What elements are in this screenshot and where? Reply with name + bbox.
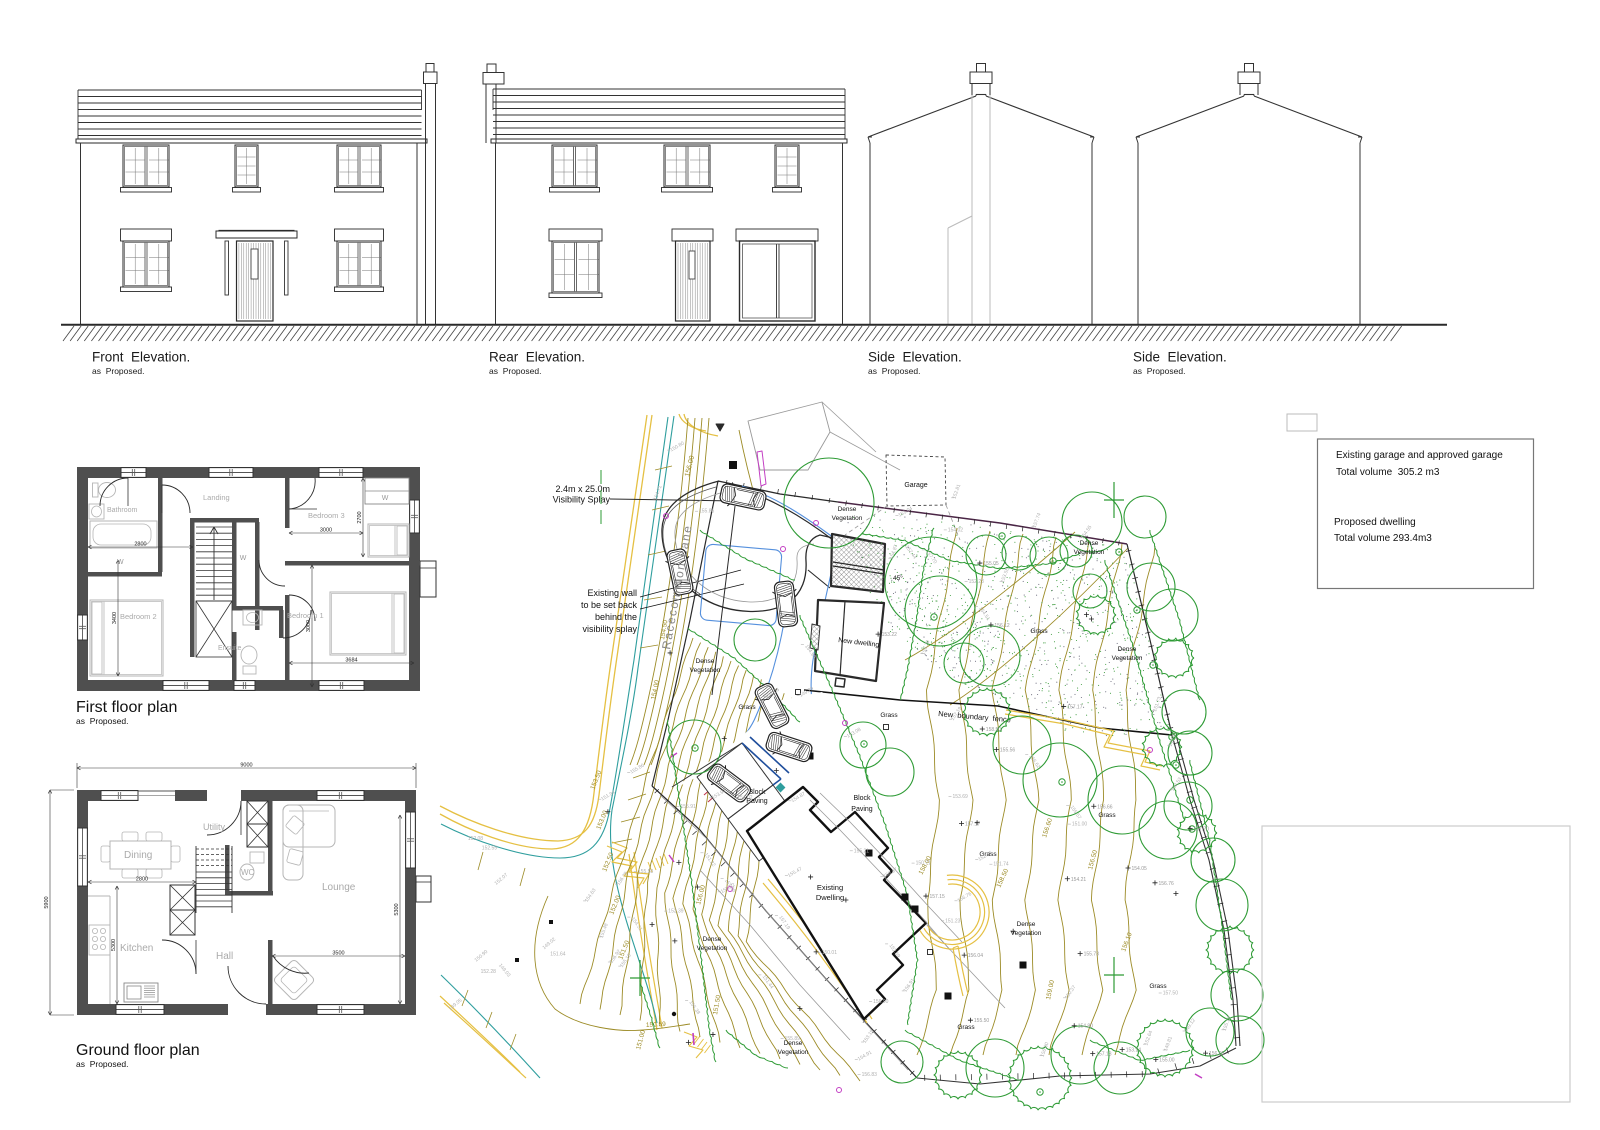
svg-text:as Proposed.: as Proposed. [92, 366, 144, 376]
svg-text:Vegetation: Vegetation [1074, 549, 1105, 556]
svg-text:Bedroom 2: Bedroom 2 [120, 612, 157, 621]
svg-text:Dense: Dense [1118, 646, 1137, 653]
svg-text:153.14: 153.14 [1126, 1048, 1142, 1054]
svg-text:5900: 5900 [44, 896, 50, 908]
svg-text:Side Elevation.: Side Elevation. [1133, 350, 1227, 365]
svg-text:154.02: 154.02 [737, 795, 753, 801]
svg-text:Dense: Dense [1080, 540, 1099, 547]
svg-text:3000: 3000 [320, 528, 332, 534]
svg-text:155.21: 155.21 [854, 848, 870, 854]
svg-text:Landing: Landing [203, 493, 230, 502]
svg-text:157.44: 157.44 [904, 544, 918, 560]
svg-text:155.56: 155.56 [1000, 748, 1016, 754]
svg-text:155.86: 155.86 [629, 763, 645, 776]
svg-text:Existing wall: Existing wall [587, 588, 637, 598]
svg-text:Kitchen: Kitchen [120, 943, 153, 954]
svg-text:Dwelling: Dwelling [816, 893, 844, 902]
svg-text:Total volume 305.2 m3: Total volume 305.2 m3 [1336, 467, 1440, 478]
svg-text:W: W [382, 495, 389, 502]
svg-text:156.76: 156.76 [1159, 881, 1175, 887]
svg-text:New boundary fence: New boundary fence [938, 709, 1011, 724]
svg-text:Grass: Grass [738, 704, 756, 711]
svg-text:152.08: 152.08 [468, 836, 484, 842]
svg-text:155.89: 155.89 [785, 1036, 801, 1042]
svg-text:Vegetation: Vegetation [1112, 655, 1143, 662]
svg-text:154.80: 154.80 [1078, 1024, 1094, 1030]
svg-text:151.50: 151.50 [712, 994, 722, 1015]
svg-text:158.50: 158.50 [986, 727, 1002, 733]
svg-text:3500: 3500 [332, 951, 344, 957]
svg-text:Existing: Existing [817, 883, 843, 892]
svg-text:5300: 5300 [394, 903, 400, 915]
svg-text:Front Elevation.: Front Elevation. [92, 350, 190, 365]
svg-text:151.23: 151.23 [945, 918, 961, 924]
svg-text:2800: 2800 [134, 542, 146, 548]
svg-text:156.90: 156.90 [873, 999, 889, 1005]
svg-text:3684: 3684 [345, 658, 357, 664]
svg-text:156.10: 156.10 [1120, 931, 1134, 952]
svg-text:Dense: Dense [696, 658, 715, 665]
svg-text:Vegetation: Vegetation [832, 515, 863, 522]
svg-text:156.66: 156.66 [1097, 804, 1113, 810]
svg-text:154.05: 154.05 [1132, 866, 1148, 872]
svg-text:156.04: 156.04 [968, 953, 984, 959]
svg-text:154.02: 154.02 [948, 527, 964, 533]
svg-text:157.50: 157.50 [1163, 991, 1179, 997]
svg-text:as Proposed.: as Proposed. [76, 716, 128, 726]
svg-text:155.73: 155.73 [1084, 952, 1100, 958]
svg-text:as Proposed.: as Proposed. [489, 366, 541, 376]
svg-text:157.70: 157.70 [1194, 827, 1210, 833]
svg-text:151.74: 151.74 [993, 862, 1009, 868]
svg-text:152.39: 152.39 [668, 909, 684, 915]
svg-text:157.74: 157.74 [1032, 512, 1043, 529]
svg-text:Lounge: Lounge [322, 882, 356, 893]
svg-text:as Proposed.: as Proposed. [868, 366, 920, 376]
svg-text:154.51: 154.51 [977, 606, 991, 622]
svg-text:Rear Elevation.: Rear Elevation. [489, 350, 585, 365]
svg-text:Dense: Dense [838, 506, 857, 513]
svg-text:156.62: 156.62 [1028, 754, 1042, 770]
svg-text:155.57: 155.57 [1069, 805, 1083, 821]
svg-text:Vegetation: Vegetation [690, 667, 721, 674]
svg-text:159.00: 159.00 [1045, 979, 1056, 1000]
svg-text:152.59: 152.59 [482, 846, 498, 852]
svg-text:149.02: 149.02 [542, 936, 558, 951]
svg-text:153.58: 153.58 [1000, 567, 1011, 584]
svg-text:Vegetation: Vegetation [778, 1049, 809, 1056]
svg-text:151.73: 151.73 [1152, 696, 1163, 713]
svg-text:155.82: 155.82 [720, 882, 736, 895]
svg-text:155.50: 155.50 [974, 1018, 990, 1024]
svg-text:Ensuite: Ensuite [218, 645, 241, 652]
svg-text:155.86: 155.86 [699, 509, 715, 515]
svg-text:152.64: 152.64 [1143, 1030, 1154, 1047]
svg-text:157.13: 157.13 [1096, 1052, 1112, 1058]
svg-text:Ground floor plan: Ground floor plan [76, 1042, 200, 1059]
svg-text:150.80: 150.80 [669, 440, 685, 453]
svg-text:150.90: 150.90 [474, 949, 490, 964]
svg-text:3000: 3000 [306, 620, 312, 632]
svg-text:151.64: 151.64 [550, 952, 566, 958]
svg-text:9000: 9000 [240, 763, 252, 769]
svg-text:W: W [117, 559, 124, 566]
svg-text:Dense: Dense [1017, 921, 1036, 928]
svg-text:152.00: 152.00 [608, 894, 622, 915]
svg-text:156.76: 156.76 [957, 891, 973, 904]
svg-text:154.51: 154.51 [630, 916, 644, 932]
svg-text:Grass: Grass [1098, 812, 1116, 819]
svg-text:Vegetation: Vegetation [697, 945, 728, 952]
svg-text:Grass: Grass [957, 1024, 975, 1031]
svg-text:Utility: Utility [203, 822, 225, 832]
svg-text:150.59: 150.59 [646, 1021, 667, 1029]
svg-text:157.15: 157.15 [930, 894, 946, 900]
svg-text:154.21: 154.21 [1071, 877, 1087, 883]
svg-text:First floor plan: First floor plan [76, 699, 177, 716]
svg-text:2.4m x 25.0m: 2.4m x 25.0m [555, 484, 610, 494]
svg-text:Total volume 293.4m3: Total volume 293.4m3 [1334, 533, 1432, 544]
svg-text:Dense: Dense [703, 936, 722, 943]
svg-text:Grass: Grass [1149, 983, 1167, 990]
svg-text:2800: 2800 [136, 877, 148, 883]
svg-text:Bedroom 1: Bedroom 1 [287, 611, 324, 620]
svg-text:W: W [240, 555, 247, 562]
svg-text:5300: 5300 [111, 939, 117, 951]
svg-text:157.17: 157.17 [1067, 704, 1083, 710]
svg-text:157.19: 157.19 [777, 915, 791, 931]
svg-text:to be set back: to be set back [581, 600, 638, 610]
svg-text:152.28: 152.28 [481, 969, 497, 975]
svg-text:visibility splay: visibility splay [582, 624, 637, 634]
svg-text:as Proposed.: as Proposed. [1133, 366, 1185, 376]
svg-text:150.01: 150.01 [822, 950, 838, 956]
svg-text:156.12: 156.12 [994, 623, 1010, 629]
svg-text:156.65: 156.65 [1209, 1051, 1225, 1057]
svg-text:Block: Block [853, 795, 871, 802]
svg-text:152.07: 152.07 [494, 872, 510, 887]
svg-text:2700: 2700 [357, 511, 363, 523]
svg-text:Grass: Grass [1030, 628, 1048, 635]
svg-text:Grass: Grass [880, 712, 898, 719]
svg-text:150.71: 150.71 [916, 861, 932, 867]
svg-text:as Proposed.: as Proposed. [76, 1059, 128, 1069]
svg-text:Hall: Hall [216, 951, 233, 962]
svg-text:Side Elevation.: Side Elevation. [868, 350, 962, 365]
svg-text:154.87: 154.87 [889, 544, 900, 561]
svg-text:153.69: 153.69 [953, 794, 969, 800]
svg-text:156.00: 156.00 [684, 455, 696, 478]
svg-text:149.03: 149.03 [497, 963, 512, 979]
svg-text:152.23: 152.23 [969, 579, 985, 585]
svg-text:152.81: 152.81 [951, 483, 962, 500]
svg-text:3400: 3400 [112, 612, 118, 624]
svg-text:Proposed dwelling: Proposed dwelling [1334, 517, 1416, 528]
svg-text:Bathroom: Bathroom [107, 507, 138, 514]
svg-text:Bedroom 3: Bedroom 3 [308, 511, 345, 520]
svg-text:149.81: 149.81 [1163, 1036, 1174, 1053]
svg-text:behind the: behind the [595, 612, 637, 622]
svg-text:155.58: 155.58 [638, 869, 654, 875]
svg-text:151.04: 151.04 [897, 506, 913, 519]
svg-text:Garage: Garage [904, 482, 927, 489]
svg-text:153.22: 153.22 [882, 632, 898, 638]
svg-text:155.00: 155.00 [1159, 1058, 1175, 1064]
svg-text:155.19: 155.19 [1222, 1015, 1233, 1032]
svg-text:WC: WC [241, 868, 255, 877]
svg-text:156.83: 156.83 [862, 1072, 878, 1078]
svg-text:155.91: 155.91 [681, 804, 697, 810]
svg-text:155.05: 155.05 [983, 561, 999, 567]
svg-text:151.00: 151.00 [1072, 822, 1088, 828]
svg-text:156.60: 156.60 [1041, 817, 1054, 838]
svg-text:Visibility Splay: Visibility Splay [553, 495, 611, 505]
svg-text:Dining: Dining [124, 850, 152, 861]
svg-text:155.48: 155.48 [599, 922, 610, 939]
svg-text:Existing garage and approved g: Existing garage and approved garage [1336, 450, 1503, 461]
svg-text:154.91: 154.91 [857, 1050, 873, 1063]
svg-text:151.00: 151.00 [635, 1029, 647, 1050]
